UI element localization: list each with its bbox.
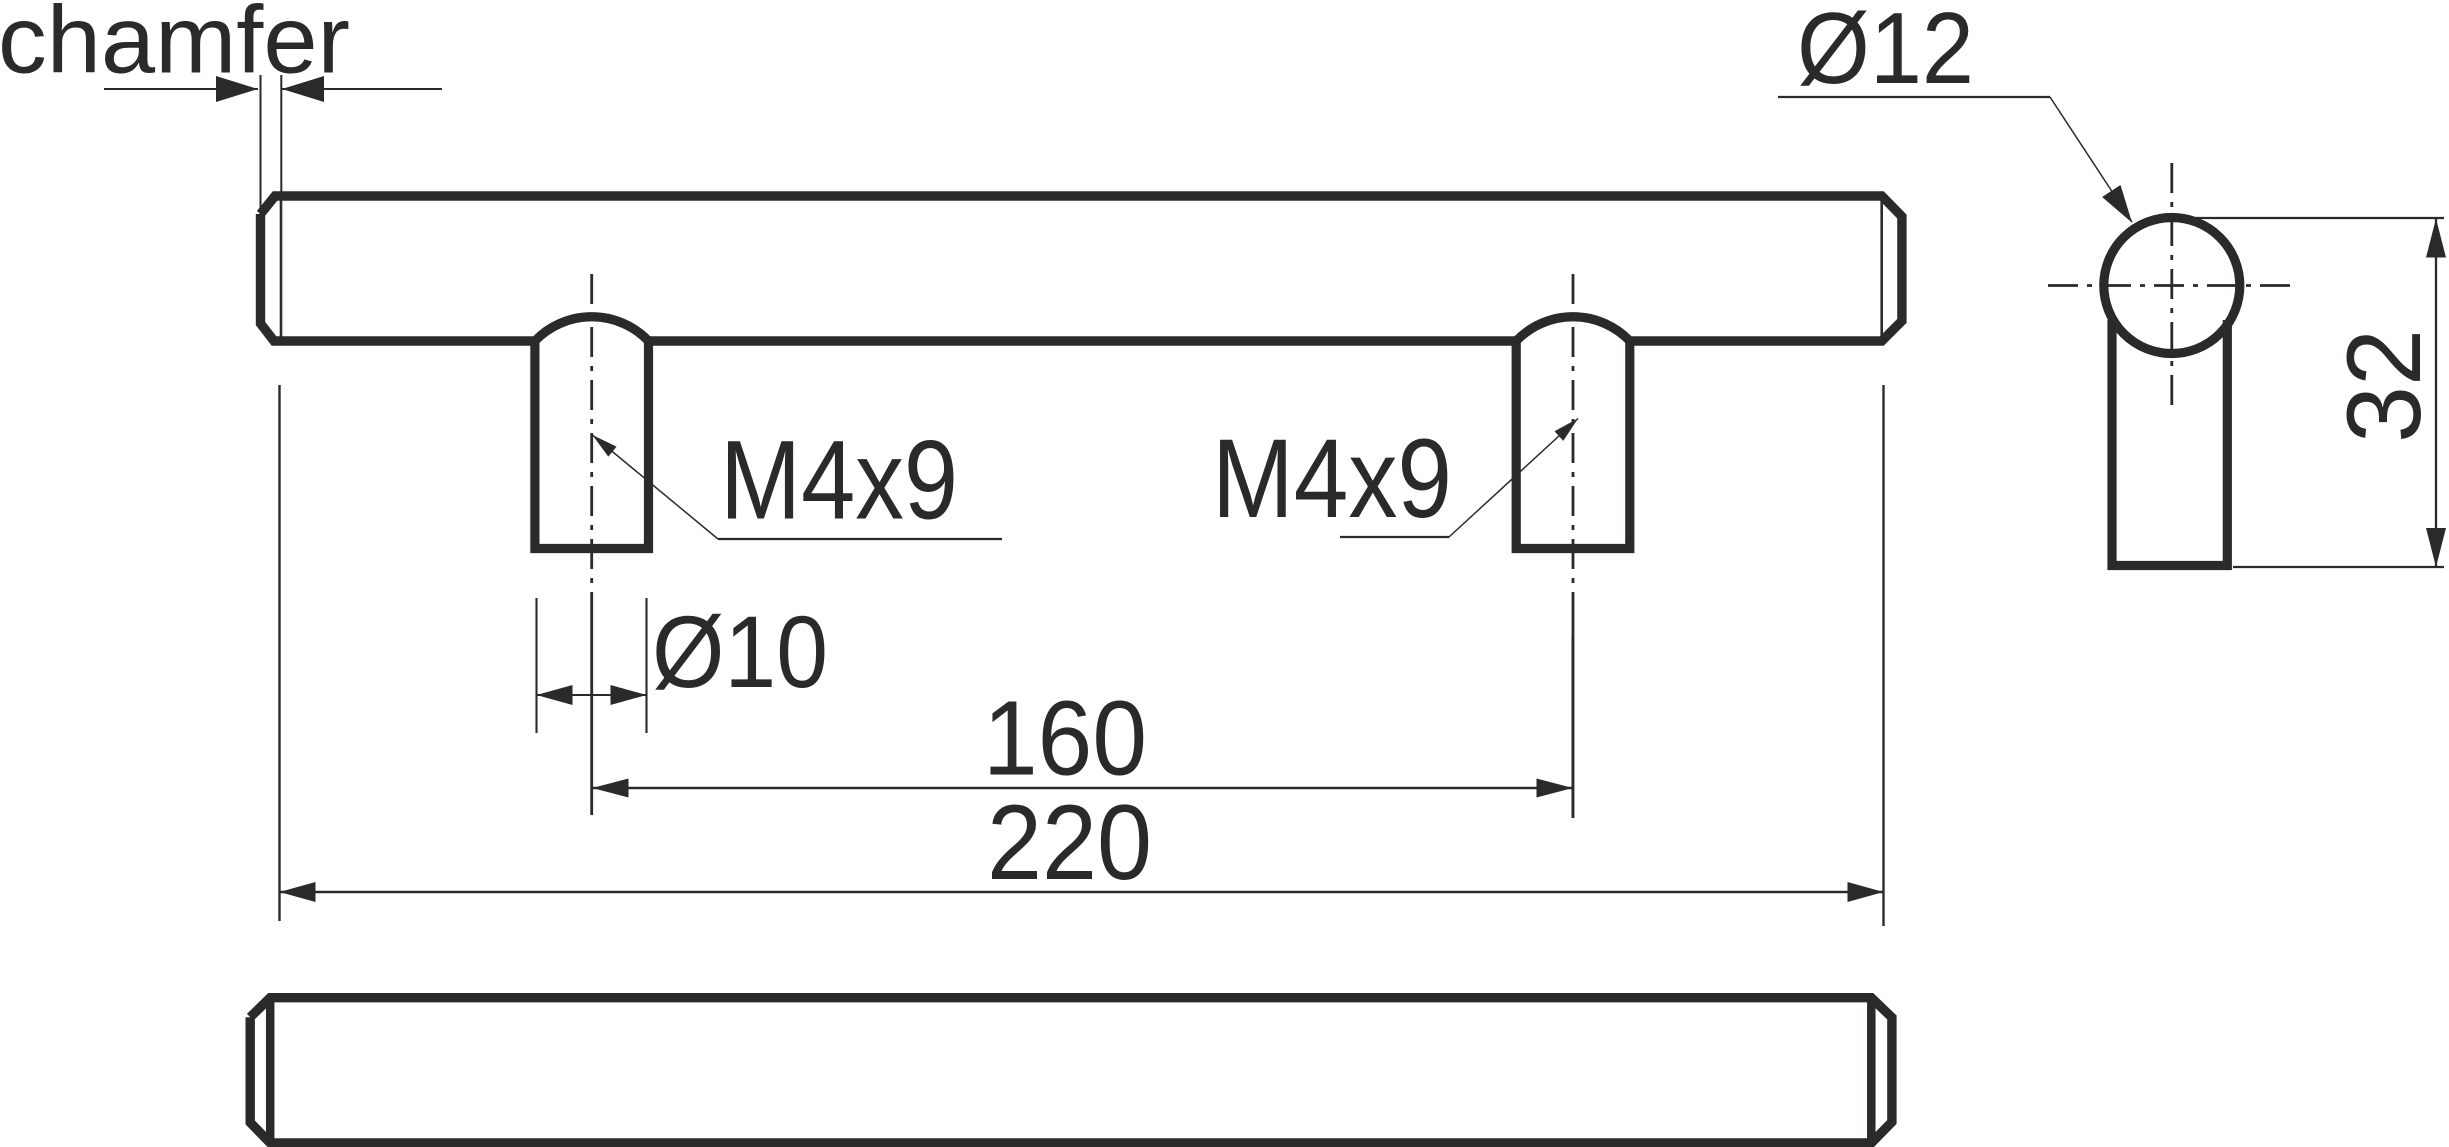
svg-text:Ø10: Ø10	[652, 595, 828, 709]
svg-text:32: 32	[2326, 329, 2443, 443]
svg-text:M4x9: M4x9	[720, 418, 958, 543]
svg-text:chamfer: chamfer	[0, 0, 350, 94]
svg-text:M4x9: M4x9	[1212, 416, 1452, 541]
svg-text:220: 220	[987, 782, 1152, 902]
svg-text:160: 160	[983, 680, 1147, 798]
svg-text:Ø12: Ø12	[1797, 0, 1974, 105]
